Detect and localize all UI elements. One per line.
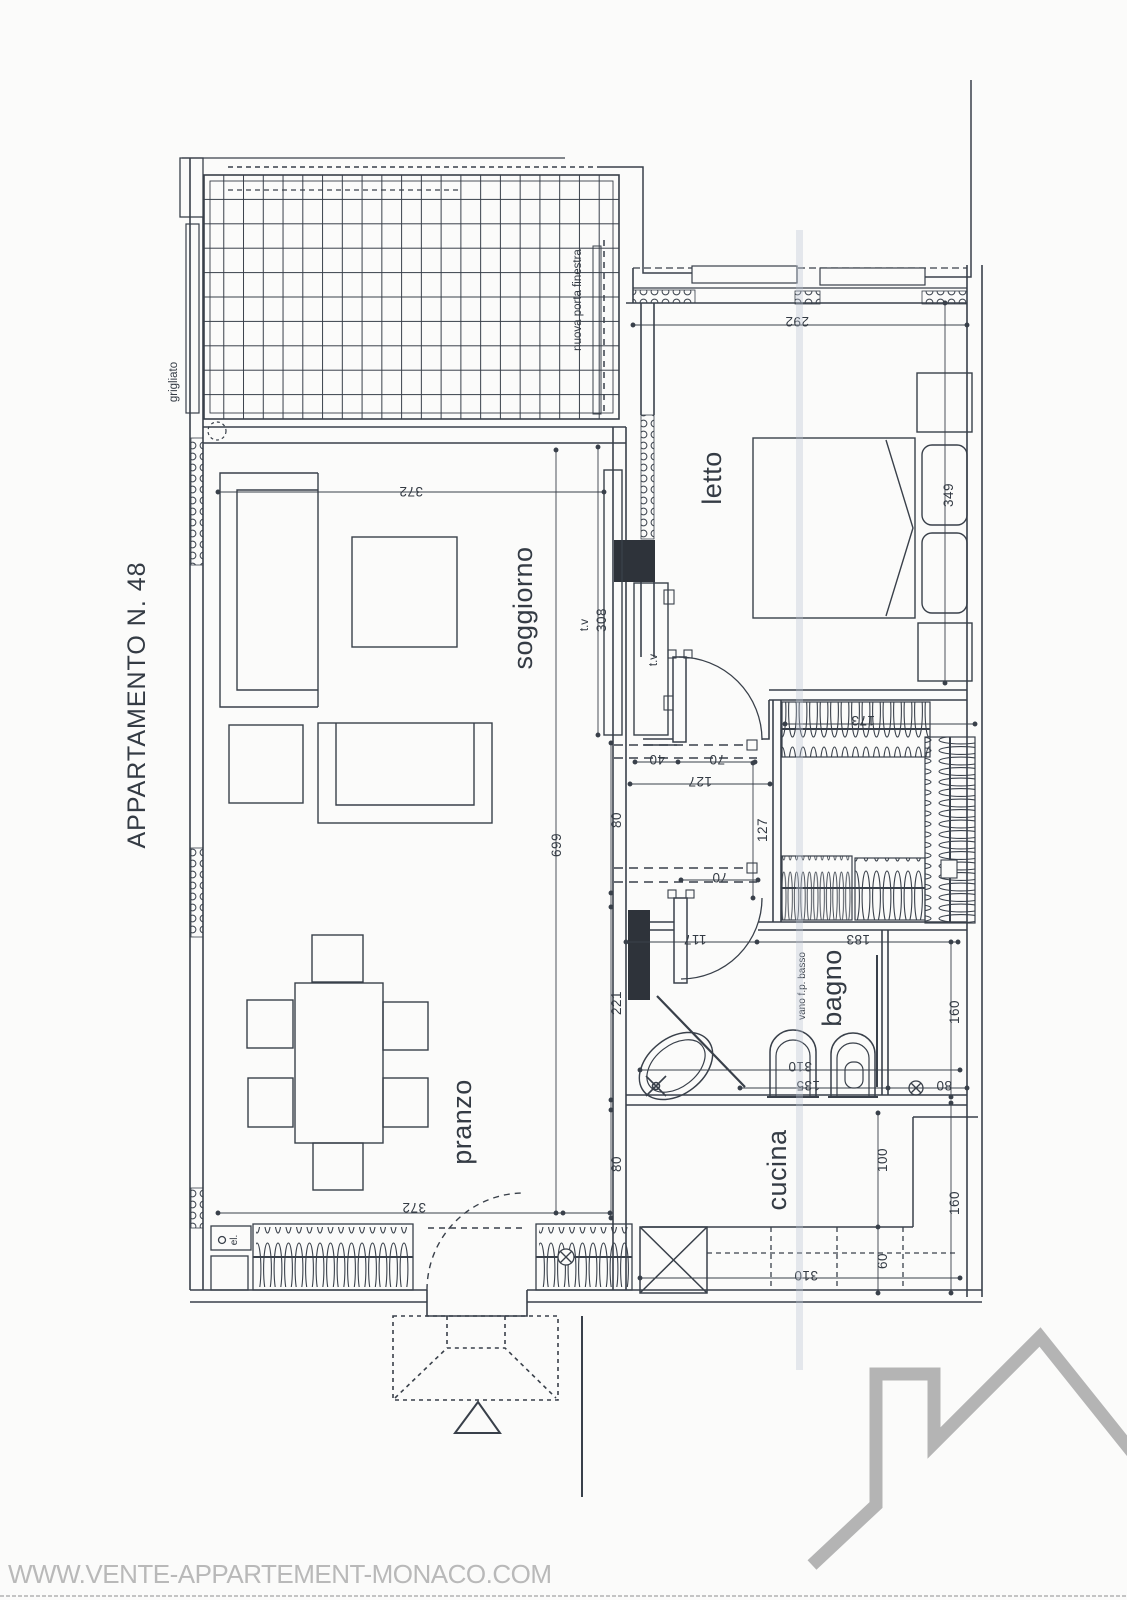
floor-plan-drawing: 372 699 308 80 221 80 372 292 349 40 70 … <box>0 0 1127 1600</box>
dim-corridor-height: 127 <box>755 818 770 842</box>
floor-plan-sheet: 372 699 308 80 221 80 372 292 349 40 70 … <box>0 0 1127 1600</box>
room-label-bagno: bagno <box>817 949 847 1027</box>
valve-icon <box>558 1249 574 1265</box>
page-title: APPARTAMENTO N. 48 <box>123 561 151 848</box>
dim-soggiorno-length: 699 <box>549 833 564 857</box>
dim-cucina-lower: 60 <box>875 1253 890 1269</box>
label-tv-soggiorno: t.v <box>579 619 591 631</box>
label-el: el. <box>229 1235 240 1246</box>
room-label-soggiorno: soggiorno <box>508 546 538 669</box>
dim-door-jamb: 40 <box>649 752 665 767</box>
label-grigliato: grigliato <box>168 362 180 402</box>
dim-letto-door: 70 <box>709 752 725 767</box>
dim-closet-width: 173 <box>851 713 875 728</box>
dim-bagno-depth: 160 <box>947 1000 962 1024</box>
dim-letto-length: 349 <box>941 483 956 507</box>
terrace <box>180 158 695 440</box>
watermark-url: WWW.VENTE-APPARTEMENT-MONACO.COM <box>8 1559 551 1589</box>
label-tv-letto: t.v <box>648 654 660 666</box>
dim-bagno-door: 70 <box>712 870 728 885</box>
rail-bracket <box>941 860 957 878</box>
letto-door-leaf <box>673 657 686 742</box>
dim-drain-offset: 80 <box>936 1078 952 1093</box>
letto-window-sill <box>820 268 925 285</box>
dim-tv-wall: 308 <box>594 608 609 632</box>
dim-bagno-wall-right: 183 <box>846 932 870 947</box>
pergola-grid <box>204 175 619 419</box>
dim-lower-niche: 80 <box>609 1156 624 1172</box>
dim-corridor-width: 127 <box>688 774 712 789</box>
room-label-cucina: cucina <box>762 1129 792 1211</box>
dim-hallway-wall: 221 <box>609 991 624 1015</box>
dim-pranzo-width: 372 <box>402 1200 426 1215</box>
scan-artifact-band <box>796 230 803 1370</box>
dim-cucina-counter: 100 <box>875 1148 890 1172</box>
pillar <box>614 540 655 582</box>
letto-window-sill <box>692 266 797 283</box>
room-label-letto: letto <box>697 451 727 505</box>
dim-cucina-depth: 160 <box>947 1191 962 1215</box>
label-nuova-porta-finestra: nuova porta finestra <box>572 249 584 351</box>
room-label-pranzo: pranzo <box>447 1079 477 1165</box>
pillar <box>628 910 650 1000</box>
dim-bagno-wall-left: 117 <box>683 932 706 947</box>
dim-niche-depth: 80 <box>609 812 624 828</box>
dim-terrace-width: 372 <box>399 484 423 499</box>
